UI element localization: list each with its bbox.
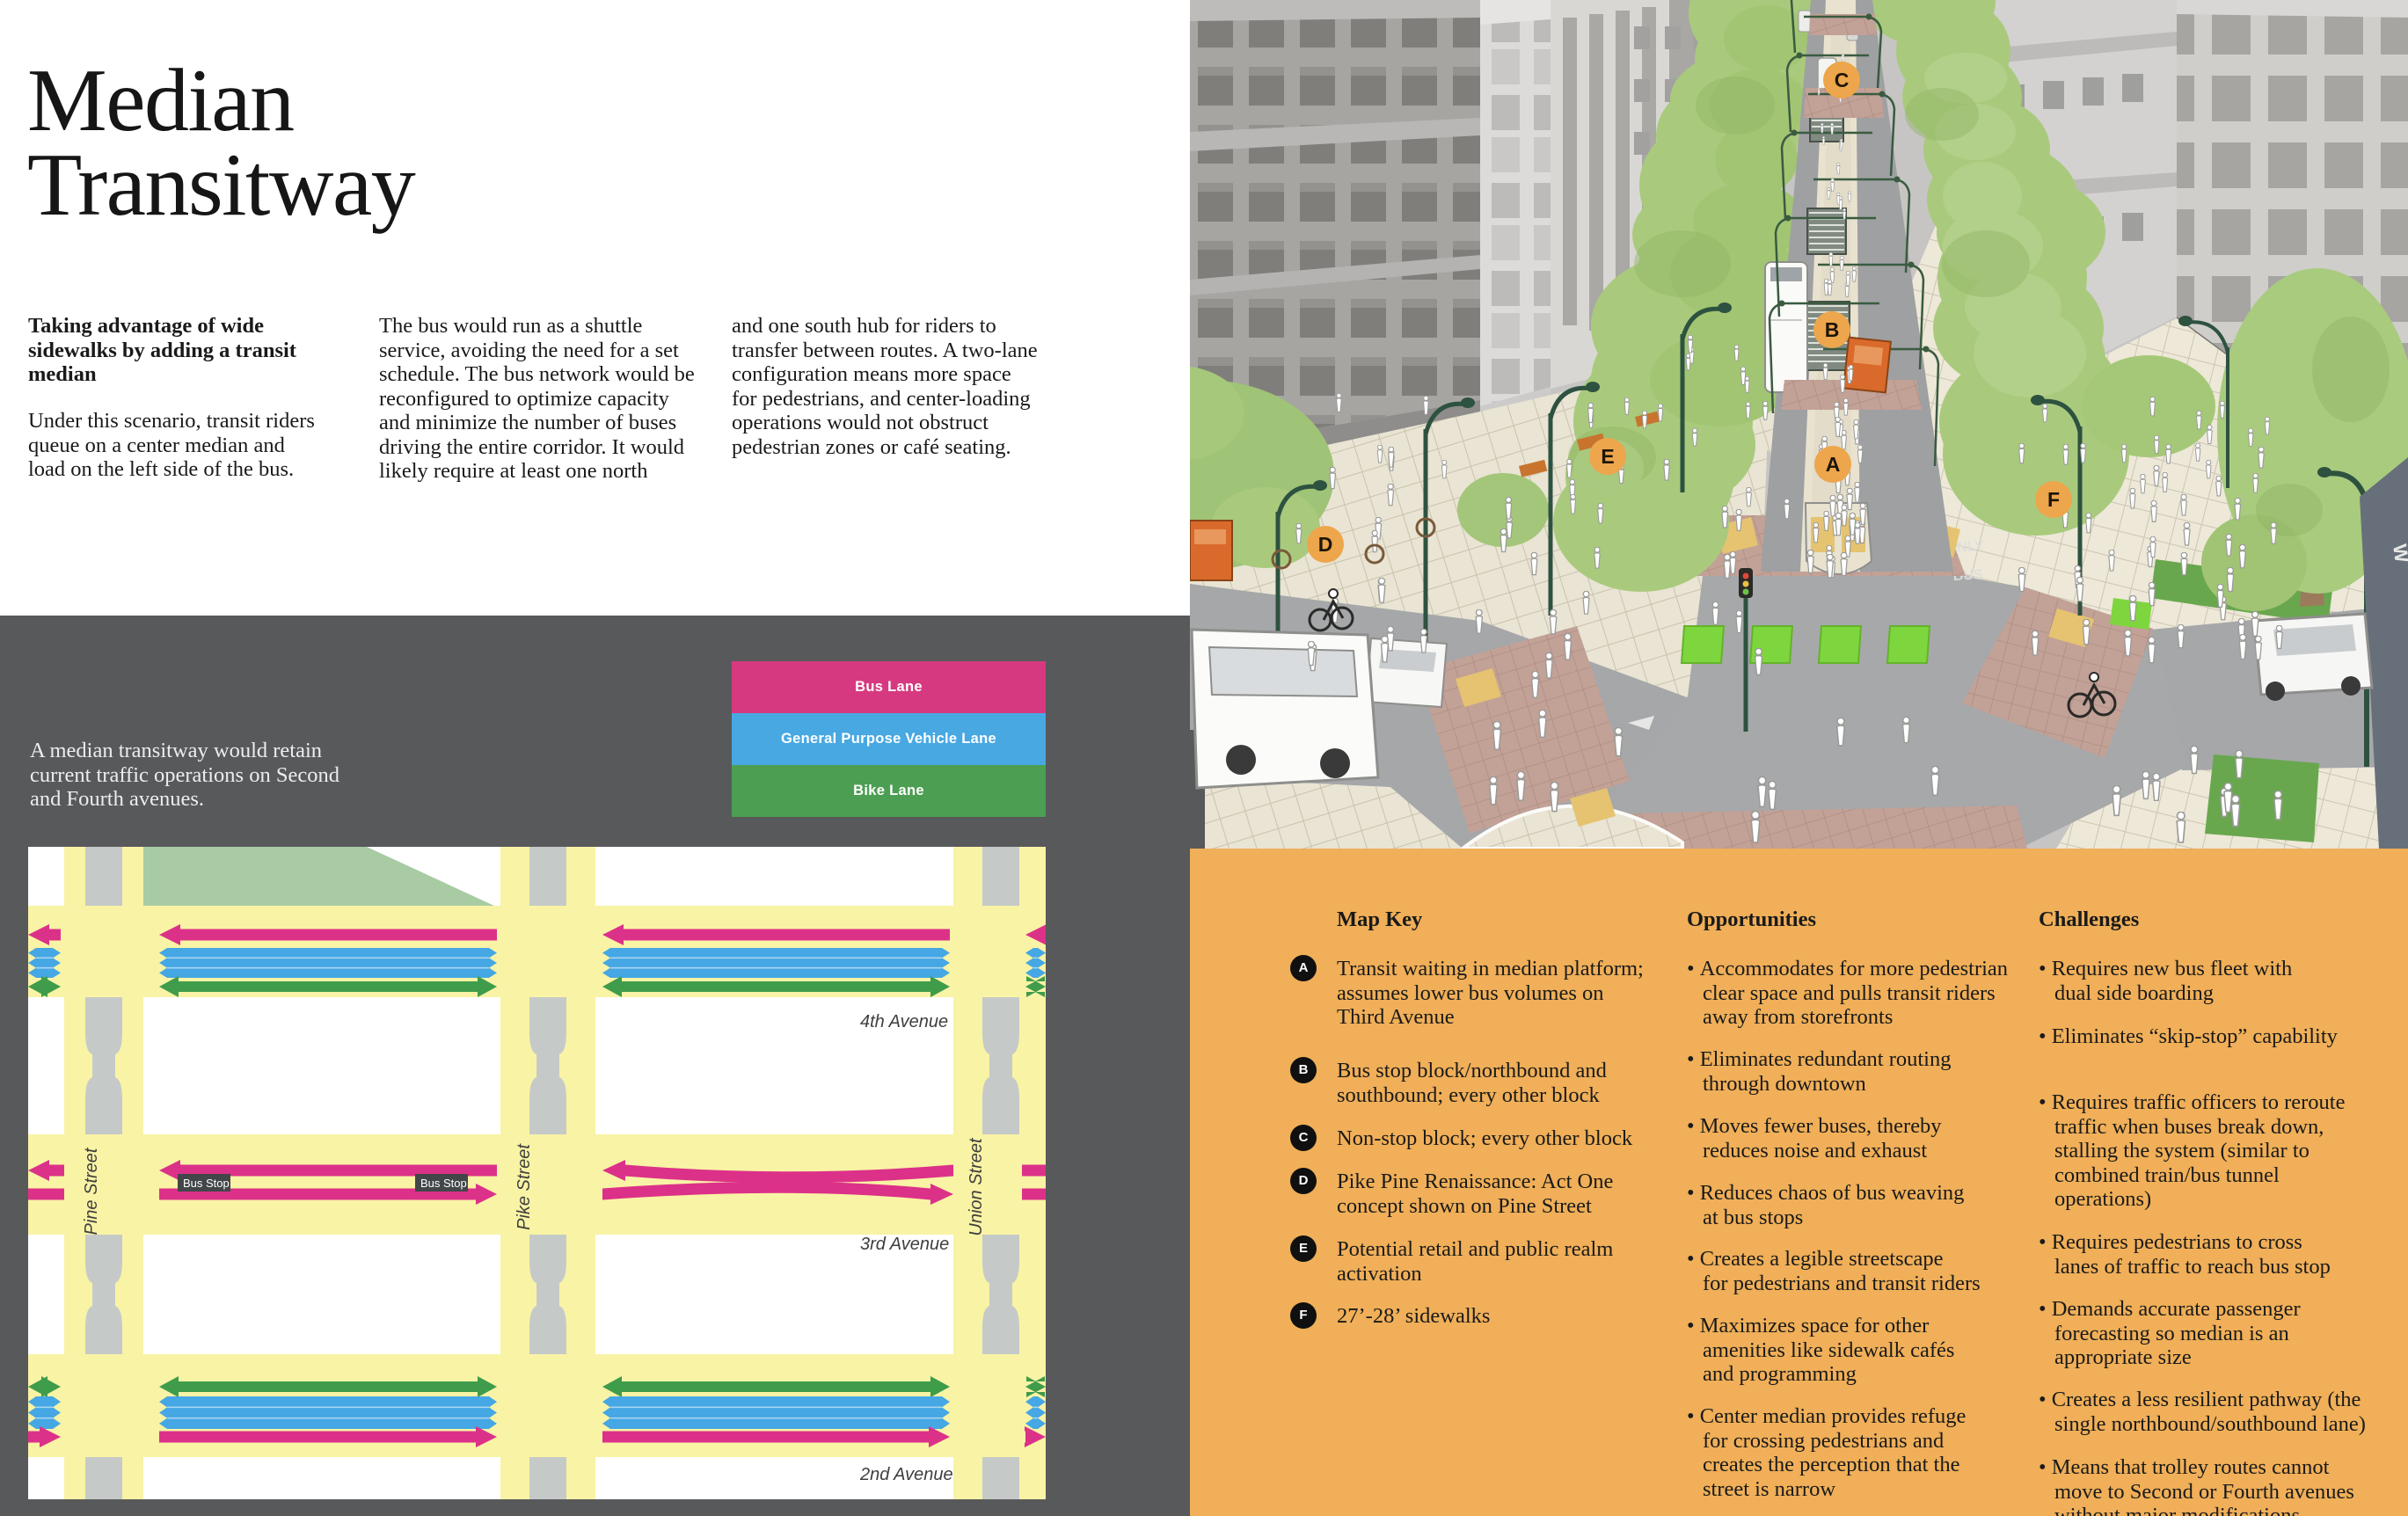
svg-text:A: A	[1826, 453, 1841, 476]
svg-text:3rd Avenue: 3rd Avenue	[860, 1235, 949, 1254]
svg-text:D: D	[1318, 533, 1333, 556]
svg-text:Bus Stop: Bus Stop	[183, 1177, 230, 1190]
svg-text:Union Street: Union Street	[967, 1137, 986, 1236]
svg-text:2nd Avenue: 2nd Avenue	[859, 1465, 953, 1484]
svg-text:Bus Stop: Bus Stop	[420, 1177, 467, 1190]
svg-text:Pike Street: Pike Street	[514, 1143, 534, 1230]
svg-text:4th Avenue: 4th Avenue	[860, 1012, 948, 1031]
svg-text:F: F	[2047, 488, 2060, 511]
svg-text:Pine Street: Pine Street	[82, 1147, 101, 1235]
svg-text:C: C	[1835, 69, 1850, 91]
svg-text:W: W	[2389, 543, 2408, 564]
svg-text:E: E	[1601, 445, 1614, 468]
svg-text:B: B	[1825, 318, 1840, 341]
